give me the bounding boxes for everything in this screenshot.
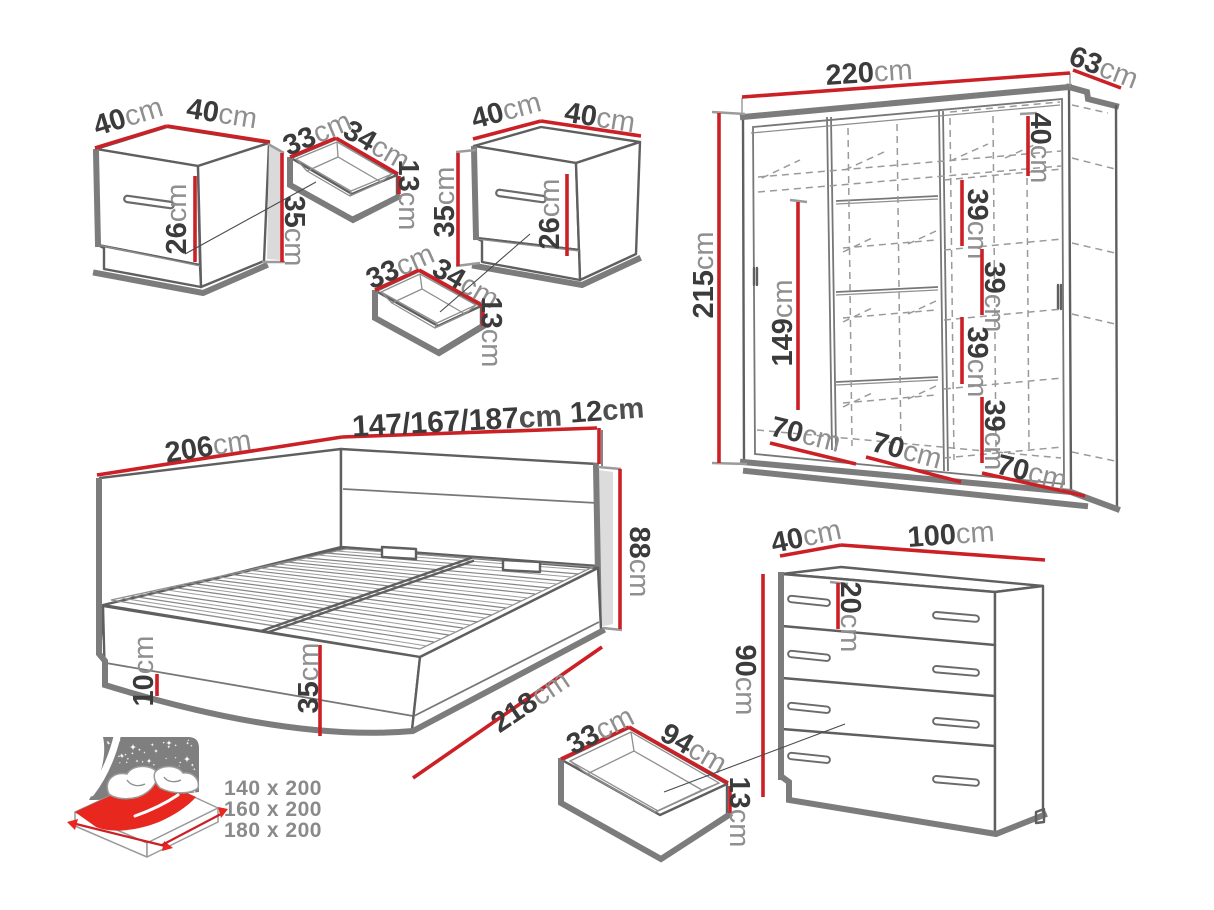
svg-text:90cm: 90cm: [729, 645, 761, 716]
svg-text:149cm: 149cm: [767, 279, 799, 366]
svg-text:13cm: 13cm: [475, 297, 507, 368]
svg-text:215cm: 215cm: [688, 231, 720, 318]
svg-text:39cm: 39cm: [961, 189, 993, 260]
svg-text:220cm: 220cm: [825, 54, 914, 92]
svg-text:26cm: 26cm: [161, 184, 193, 255]
svg-text:20cm: 20cm: [834, 582, 866, 653]
svg-text:35cm: 35cm: [278, 196, 310, 267]
svg-text:39cm: 39cm: [961, 327, 993, 398]
svg-text:13cm: 13cm: [392, 160, 424, 231]
svg-text:13cm: 13cm: [723, 777, 755, 848]
svg-text:160 x 200: 160 x 200: [224, 798, 322, 821]
svg-text:26cm: 26cm: [534, 179, 566, 250]
svg-text:40cm: 40cm: [1024, 113, 1056, 184]
svg-text:180 x 200: 180 x 200: [224, 819, 322, 842]
svg-text:10cm: 10cm: [128, 636, 160, 707]
svg-text:12cm: 12cm: [569, 392, 645, 429]
svg-text:88cm: 88cm: [623, 527, 655, 598]
svg-text:35cm: 35cm: [293, 643, 325, 714]
svg-text:100cm: 100cm: [907, 516, 996, 554]
svg-text:140 x 200: 140 x 200: [224, 777, 322, 800]
svg-text:35cm: 35cm: [429, 167, 461, 238]
svg-text:39cm: 39cm: [978, 262, 1010, 333]
